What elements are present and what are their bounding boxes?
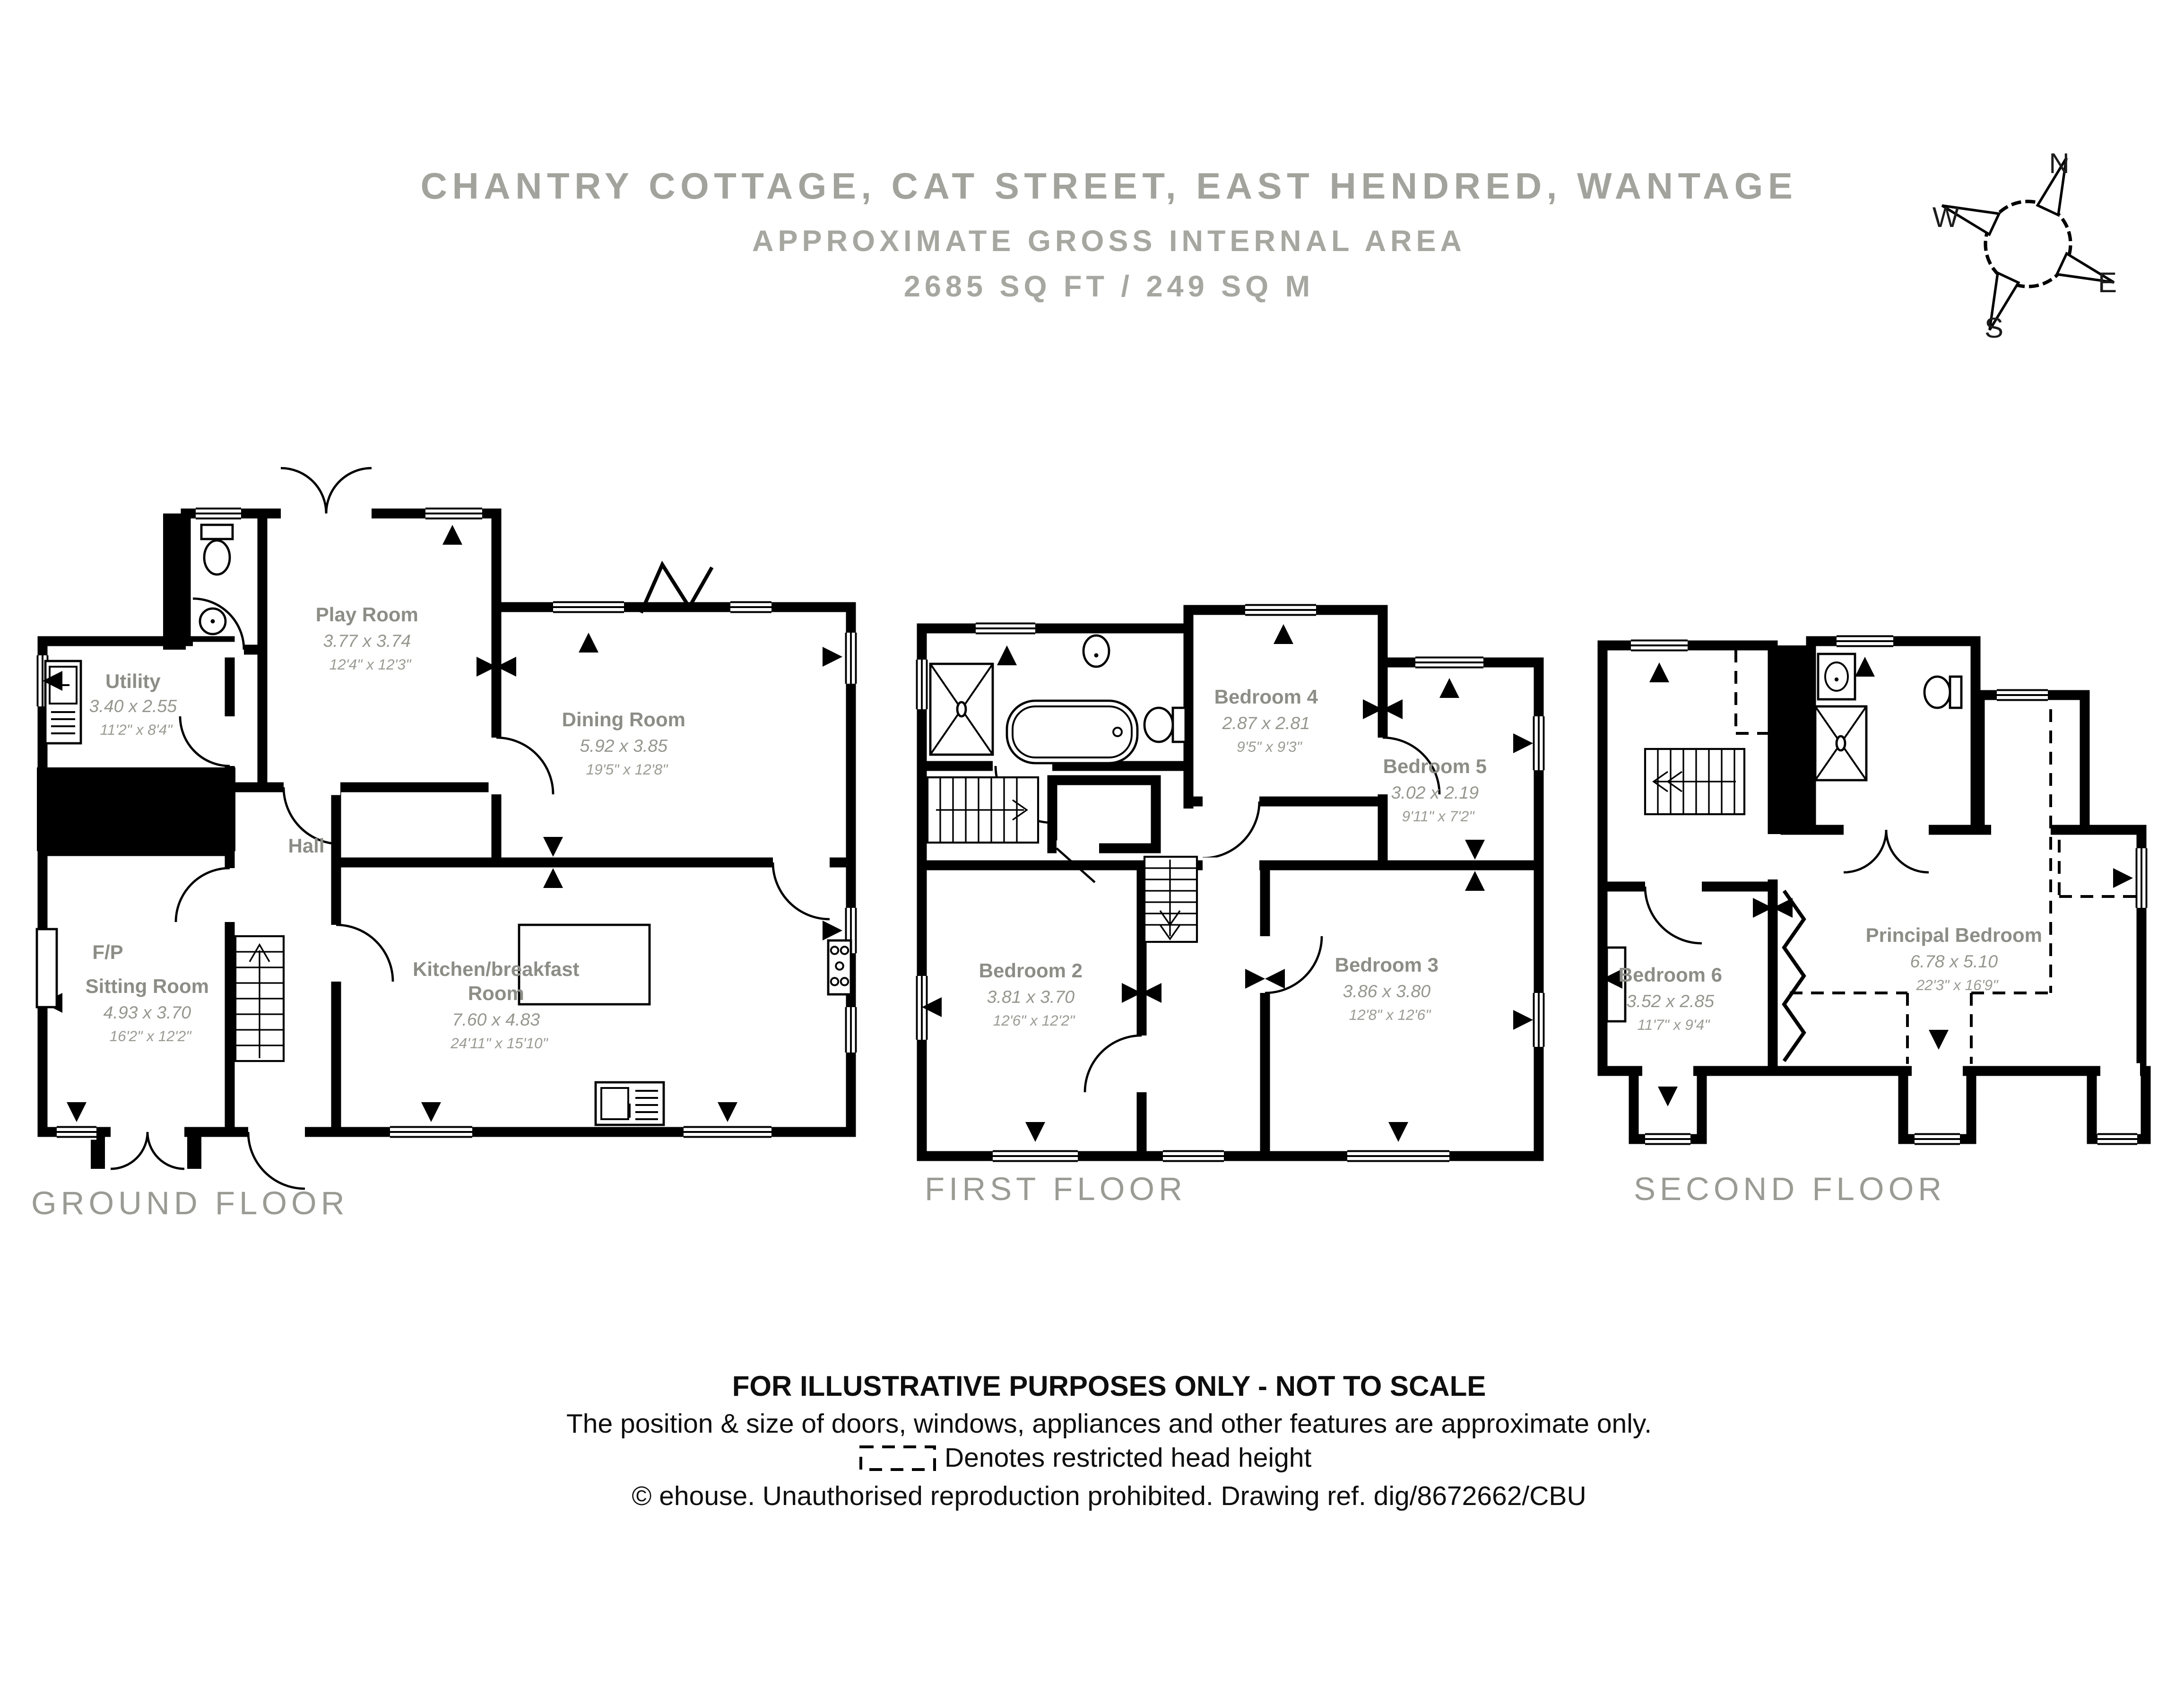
footer-copyright: © ehouse. Unauthorised reproduction proh…: [632, 1481, 1586, 1511]
window: [843, 1007, 859, 1053]
footer-key-label: Denotes restricted head height: [945, 1443, 1311, 1473]
room-bedroom-2: [922, 865, 1142, 1156]
bath-icon: [1007, 701, 1137, 763]
window: [425, 506, 482, 522]
stairs: [235, 936, 284, 1061]
basin-icon: [200, 609, 225, 634]
window: [2097, 1131, 2137, 1147]
ground-floor-walls: [37, 513, 851, 1169]
compass-w-label: W: [1933, 201, 1959, 233]
toilet-icon: [1144, 708, 1186, 742]
fireplace-icon: [37, 929, 57, 1007]
basin-icon: [1818, 654, 1855, 699]
compass-icon: N W E S: [1910, 126, 2146, 362]
ground-floor-plan: Play Room 3.77 x 3.74 12'4" x 12'3" Util…: [31, 468, 859, 1221]
window: [2134, 848, 2149, 908]
stairs-up: [927, 777, 1038, 843]
window: [1915, 1131, 1960, 1147]
compass-s-label: S: [1985, 312, 2003, 344]
first-floor-title: FIRST FLOOR: [925, 1171, 1187, 1207]
window: [1245, 602, 1316, 618]
dormer: [1903, 1071, 1971, 1139]
compass-ring: [1975, 191, 2082, 298]
compass-e-label: E: [2098, 267, 2117, 298]
title-block: CHANTRY COTTAGE, CAT STREET, EAST HENDRE…: [421, 165, 1798, 303]
restricted-head-height-key-icon: [861, 1447, 935, 1470]
room-principal-bedroom: [1773, 830, 2141, 1071]
compass-arrows: [1910, 126, 2146, 362]
window: [1415, 655, 1483, 670]
window: [976, 621, 1035, 636]
back-door: [248, 1132, 305, 1189]
bedroom-3-label: Bedroom 3 3.86 x 3.80 12'8" x 12'6": [1335, 952, 1445, 1023]
hob-icon: [828, 940, 851, 994]
page-area: 2685 SQ FT / 249 SQ M: [904, 270, 1314, 303]
toilet-icon: [201, 525, 233, 574]
window: [1645, 1131, 1690, 1147]
compass-n-label: N: [2049, 148, 2069, 179]
kitchen-sink-icon: [596, 1082, 664, 1125]
wall-mass: [1778, 645, 1806, 830]
window: [993, 1149, 1078, 1164]
toilet-icon: [1924, 677, 1961, 708]
footer-approximation-note: The position & size of doors, windows, a…: [566, 1409, 1652, 1439]
window: [1837, 634, 1893, 649]
closet: [1052, 780, 1156, 848]
bedroom-2-label: Bedroom 2 3.81 x 3.70 12'6" x 12'2": [979, 957, 1089, 1029]
sf-nook: [1980, 695, 2085, 830]
window: [196, 506, 241, 522]
stairs: [1645, 749, 1744, 814]
basin-icon: [1083, 635, 1109, 667]
window: [1631, 638, 1688, 653]
window: [843, 633, 859, 684]
page-title: CHANTRY COTTAGE, CAT STREET, EAST HENDRE…: [421, 165, 1798, 207]
hall-label: Hall: [288, 835, 324, 857]
window: [914, 660, 930, 709]
window: [684, 1124, 771, 1140]
footer-block: FOR ILLUSTRATIVE PURPOSES ONLY - NOT TO …: [566, 1370, 1652, 1511]
window: [1531, 716, 1547, 770]
wall-mass: [163, 513, 186, 650]
window: [1163, 1149, 1224, 1164]
fireplace-label: F/P: [92, 941, 123, 963]
shower-icon: [930, 664, 993, 755]
play-room-label: Play Room 3.77 x 3.74 12'4" x 12'3": [316, 601, 425, 673]
window: [553, 600, 624, 615]
window: [730, 600, 771, 615]
page-subtitle: APPROXIMATE GROSS INTERNAL AREA: [752, 225, 1466, 258]
shower-icon: [1815, 706, 1866, 780]
first-floor-plan: Bedroom 4 2.87 x 2.81 9'5" x 9'3" Bedroo…: [914, 602, 1547, 1208]
wall-mass: [37, 767, 235, 851]
porch-wall: [187, 1132, 201, 1169]
window: [1997, 687, 2048, 703]
window: [57, 1124, 96, 1140]
dormer: [2092, 1071, 2146, 1139]
window: [1347, 1149, 1449, 1164]
window: [390, 1124, 472, 1140]
footer-disclaimer: FOR ILLUSTRATIVE PURPOSES ONLY - NOT TO …: [732, 1370, 1486, 1402]
second-floor-title: SECOND FLOOR: [1634, 1171, 1946, 1207]
second-floor-plan: Bedroom 6 3.52 x 2.85 11'7" x 9'4" Princ…: [1603, 634, 2149, 1208]
stairs-down: [1144, 857, 1197, 942]
ground-floor-title: GROUND FLOOR: [31, 1185, 349, 1221]
floorplan-canvas: CHANTRY COTTAGE, CAT STREET, EAST HENDRE…: [0, 0, 2184, 1688]
window: [1531, 993, 1547, 1047]
utility-sink-icon: [45, 661, 81, 743]
